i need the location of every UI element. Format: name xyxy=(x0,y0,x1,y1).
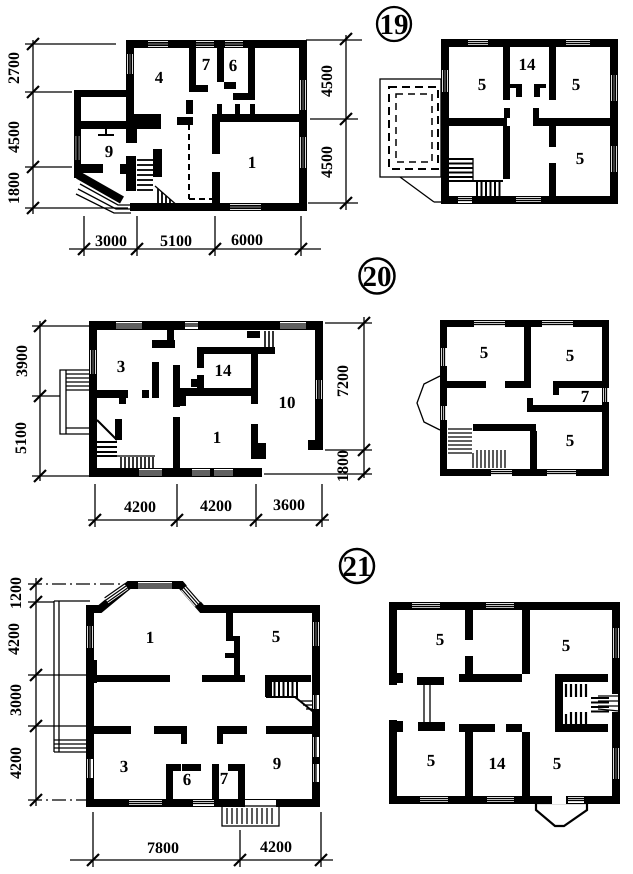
svg-text:5: 5 xyxy=(566,346,575,365)
svg-text:7800: 7800 xyxy=(147,840,179,857)
svg-text:1: 1 xyxy=(146,628,155,647)
svg-text:4200: 4200 xyxy=(200,498,232,515)
svg-text:21: 21 xyxy=(343,551,372,583)
svg-text:6000: 6000 xyxy=(231,232,263,249)
svg-text:3000: 3000 xyxy=(8,684,25,716)
svg-text:4: 4 xyxy=(155,68,164,87)
svg-text:9: 9 xyxy=(273,754,282,773)
svg-text:4200: 4200 xyxy=(124,499,156,516)
svg-text:19: 19 xyxy=(380,9,409,41)
svg-text:5: 5 xyxy=(427,751,436,770)
svg-text:5: 5 xyxy=(566,431,575,450)
svg-text:7: 7 xyxy=(202,55,211,74)
svg-text:1800: 1800 xyxy=(6,172,23,204)
svg-text:4200: 4200 xyxy=(8,747,25,779)
svg-text:5: 5 xyxy=(478,75,487,94)
svg-text:4500: 4500 xyxy=(319,65,336,97)
svg-text:3: 3 xyxy=(120,757,129,776)
svg-text:5: 5 xyxy=(572,75,581,94)
svg-text:1: 1 xyxy=(248,153,257,172)
svg-text:2700: 2700 xyxy=(6,52,23,84)
svg-text:1: 1 xyxy=(213,428,222,447)
svg-text:7200: 7200 xyxy=(335,365,352,397)
svg-text:9: 9 xyxy=(105,142,114,161)
svg-text:20: 20 xyxy=(363,261,392,293)
svg-text:4200: 4200 xyxy=(6,623,23,655)
svg-text:14: 14 xyxy=(215,361,233,380)
svg-text:4500: 4500 xyxy=(6,121,23,153)
svg-text:5: 5 xyxy=(576,149,585,168)
svg-text:5100: 5100 xyxy=(160,233,192,250)
svg-text:5: 5 xyxy=(436,630,445,649)
svg-text:5: 5 xyxy=(480,343,489,362)
svg-text:5: 5 xyxy=(272,627,281,646)
svg-text:3: 3 xyxy=(117,357,126,376)
svg-text:1200: 1200 xyxy=(8,577,25,609)
svg-text:5: 5 xyxy=(553,754,562,773)
svg-text:4200: 4200 xyxy=(260,839,292,856)
svg-text:3600: 3600 xyxy=(273,497,305,514)
svg-text:10: 10 xyxy=(279,393,296,412)
svg-text:6: 6 xyxy=(183,770,192,789)
svg-text:6: 6 xyxy=(229,56,238,75)
svg-text:7: 7 xyxy=(581,387,590,406)
svg-text:14: 14 xyxy=(489,754,507,773)
svg-text:1800: 1800 xyxy=(335,450,352,482)
svg-text:5100: 5100 xyxy=(13,422,30,454)
svg-text:4500: 4500 xyxy=(319,146,336,178)
svg-text:5: 5 xyxy=(562,636,571,655)
svg-text:14: 14 xyxy=(519,55,537,74)
svg-text:7: 7 xyxy=(220,769,229,788)
svg-text:3900: 3900 xyxy=(14,345,31,377)
svg-text:3000: 3000 xyxy=(95,233,127,250)
